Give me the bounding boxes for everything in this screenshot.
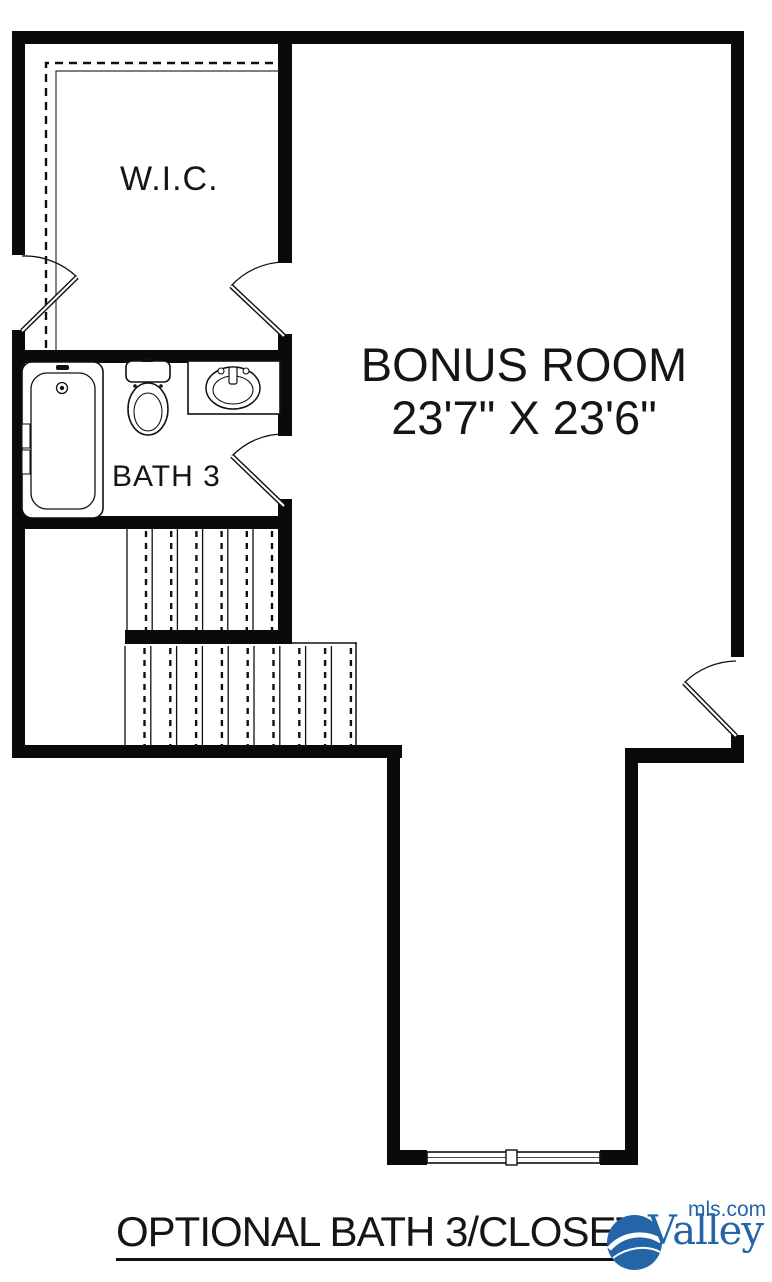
valleymls-logo: Valley mls.com: [604, 1196, 772, 1266]
toilet-icon: [126, 358, 170, 435]
bath-room-label: BATH 3: [112, 460, 221, 494]
floorplan: W.I.C. BATH 3 BONUS ROOM 23'7" X 23'6" O…: [0, 0, 772, 1282]
door-swing-icon-wic-left: [22, 256, 77, 331]
bathtub-icon: [22, 362, 103, 518]
bonus-room-dimensions: 23'7" X 23'6": [340, 391, 708, 444]
bonus-room-name: BONUS ROOM: [340, 338, 708, 391]
window-icon: [427, 1150, 600, 1165]
stairs-icon-upper-run: [127, 529, 272, 630]
door-swing-icon-wic-right: [231, 262, 284, 336]
logo-mls-text: mls.com: [688, 1198, 766, 1222]
plan-caption: OPTIONAL BATH 3/CLOSET: [116, 1208, 640, 1261]
plan-graphics: [0, 0, 772, 1282]
bonus-room-label: BONUS ROOM 23'7" X 23'6": [340, 338, 708, 444]
door-swing-icon-bath: [232, 434, 284, 506]
closet-dashed-line-icon: [46, 63, 279, 350]
wic-room-label: W.I.C.: [120, 160, 219, 199]
door-swing-icon-bonus: [684, 661, 736, 736]
sink-icon: [188, 361, 280, 414]
stairs-icon-lower-run: [125, 643, 357, 745]
